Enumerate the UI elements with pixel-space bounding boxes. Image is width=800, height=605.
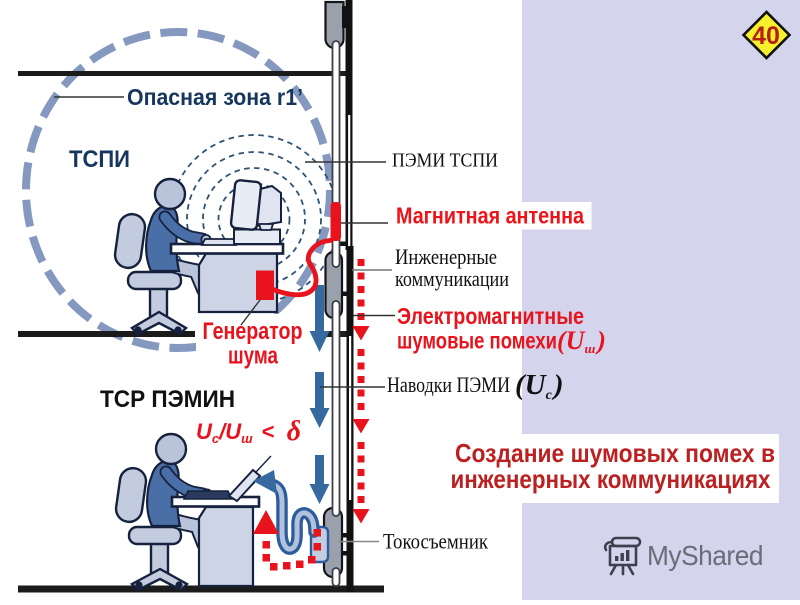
svg-text:инженерных коммуникациях: инженерных коммуникациях: [451, 464, 771, 494]
svg-text:ТСР ПЭМИН: ТСР ПЭМИН: [100, 386, 235, 413]
svg-text:Токосъемник: Токосъемник: [383, 529, 488, 554]
svg-text:Наводки ПЭМИ: Наводки ПЭМИ: [387, 372, 510, 397]
svg-text:(Uс): (Uс): [515, 369, 564, 403]
svg-text:коммуникации: коммуникации: [395, 266, 509, 291]
svg-text:ПЭМИ ТСПИ: ПЭМИ ТСПИ: [392, 150, 498, 172]
svg-text:Магнитная антенна: Магнитная антенна: [396, 203, 584, 229]
svg-text:Электромагнитные: Электромагнитные: [397, 303, 584, 329]
svg-text:Опасная зона r1’: Опасная зона r1’: [127, 84, 303, 110]
svg-text:ТСПИ: ТСПИ: [69, 146, 130, 173]
svg-text:40: 40: [752, 22, 780, 50]
svg-text:MyShared: MyShared: [647, 540, 763, 571]
svg-text:шумовые помехи: шумовые помехи: [397, 328, 557, 354]
svg-text:шума: шума: [228, 343, 279, 370]
svg-text:Генератор: Генератор: [203, 318, 303, 345]
svg-text:(Uш): (Uш): [557, 326, 606, 356]
